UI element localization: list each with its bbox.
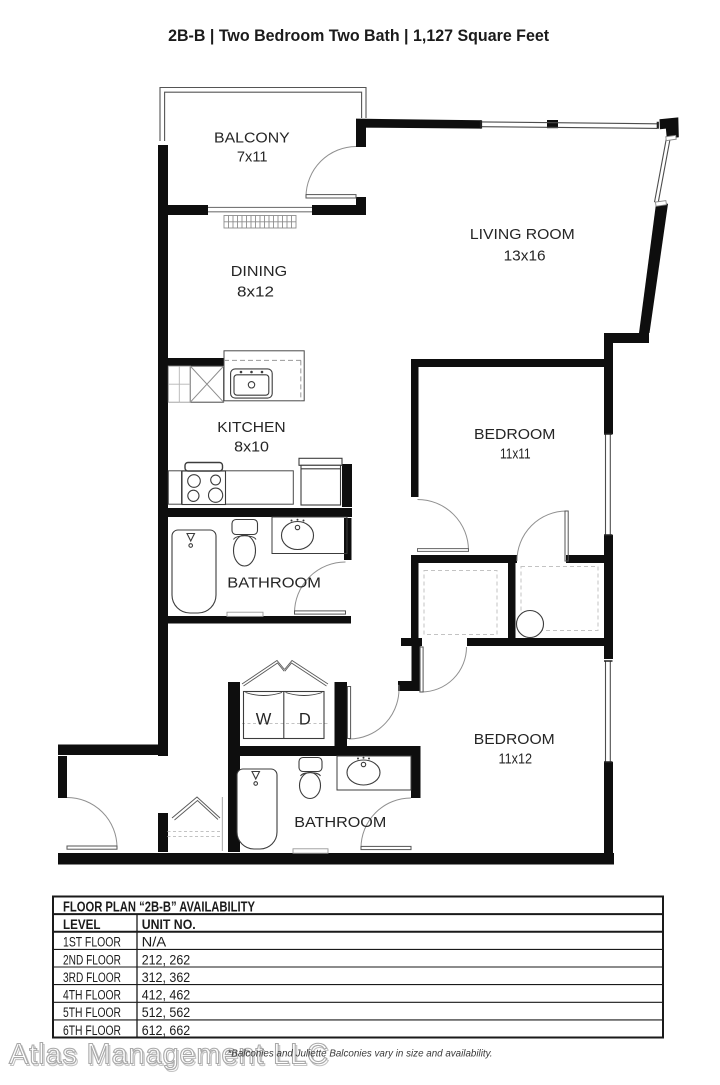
svg-text:BALCONY: BALCONY	[214, 130, 290, 146]
svg-text:7x11: 7x11	[237, 149, 268, 165]
svg-text:13x16: 13x16	[504, 249, 546, 265]
svg-text:BATHROOM: BATHROOM	[294, 815, 386, 831]
svg-text:FLOOR PLAN “2B-B” AVAILABILITY: FLOOR PLAN “2B-B” AVAILABILITY	[63, 899, 255, 915]
svg-text:BEDROOM: BEDROOM	[474, 732, 555, 748]
svg-text:BATHROOM: BATHROOM	[227, 575, 321, 591]
svg-text:8x10: 8x10	[234, 440, 269, 456]
svg-text:11x12: 11x12	[499, 752, 533, 768]
svg-text:N/A: N/A	[142, 935, 167, 950]
svg-text:5TH FLOOR: 5TH FLOOR	[63, 1005, 121, 1020]
svg-text:412, 462: 412, 462	[142, 988, 191, 1003]
svg-text:LIVING ROOM: LIVING ROOM	[470, 227, 575, 243]
svg-text:11x11: 11x11	[500, 447, 531, 463]
svg-text:2ND FLOOR: 2ND FLOOR	[63, 952, 121, 967]
svg-text:8x12: 8x12	[237, 284, 274, 300]
svg-text:LEVEL: LEVEL	[63, 916, 101, 932]
svg-text:UNIT NO.: UNIT NO.	[142, 916, 196, 932]
svg-text:6TH FLOOR: 6TH FLOOR	[63, 1023, 121, 1038]
svg-text:BEDROOM: BEDROOM	[474, 427, 555, 443]
svg-text:D: D	[299, 711, 311, 729]
svg-text:W: W	[256, 711, 272, 729]
svg-text:612, 662: 612, 662	[142, 1023, 191, 1038]
svg-text:*Balconies and Juliette Balcon: *Balconies and Juliette Balconies vary i…	[227, 1049, 492, 1060]
svg-text:4TH FLOOR: 4TH FLOOR	[63, 988, 121, 1003]
svg-text:KITCHEN: KITCHEN	[217, 420, 285, 436]
svg-text:DINING: DINING	[231, 264, 287, 280]
svg-text:512, 562: 512, 562	[142, 1005, 191, 1020]
svg-text:3RD FLOOR: 3RD FLOOR	[63, 970, 121, 985]
svg-text:1ST FLOOR: 1ST FLOOR	[63, 935, 121, 950]
svg-text:312, 362: 312, 362	[142, 970, 191, 985]
svg-text:2B-B | Two Bedroom Two Bath |: 2B-B | Two Bedroom Two Bath | 1,127 Squa…	[168, 26, 549, 45]
svg-text:212, 262: 212, 262	[142, 952, 191, 967]
